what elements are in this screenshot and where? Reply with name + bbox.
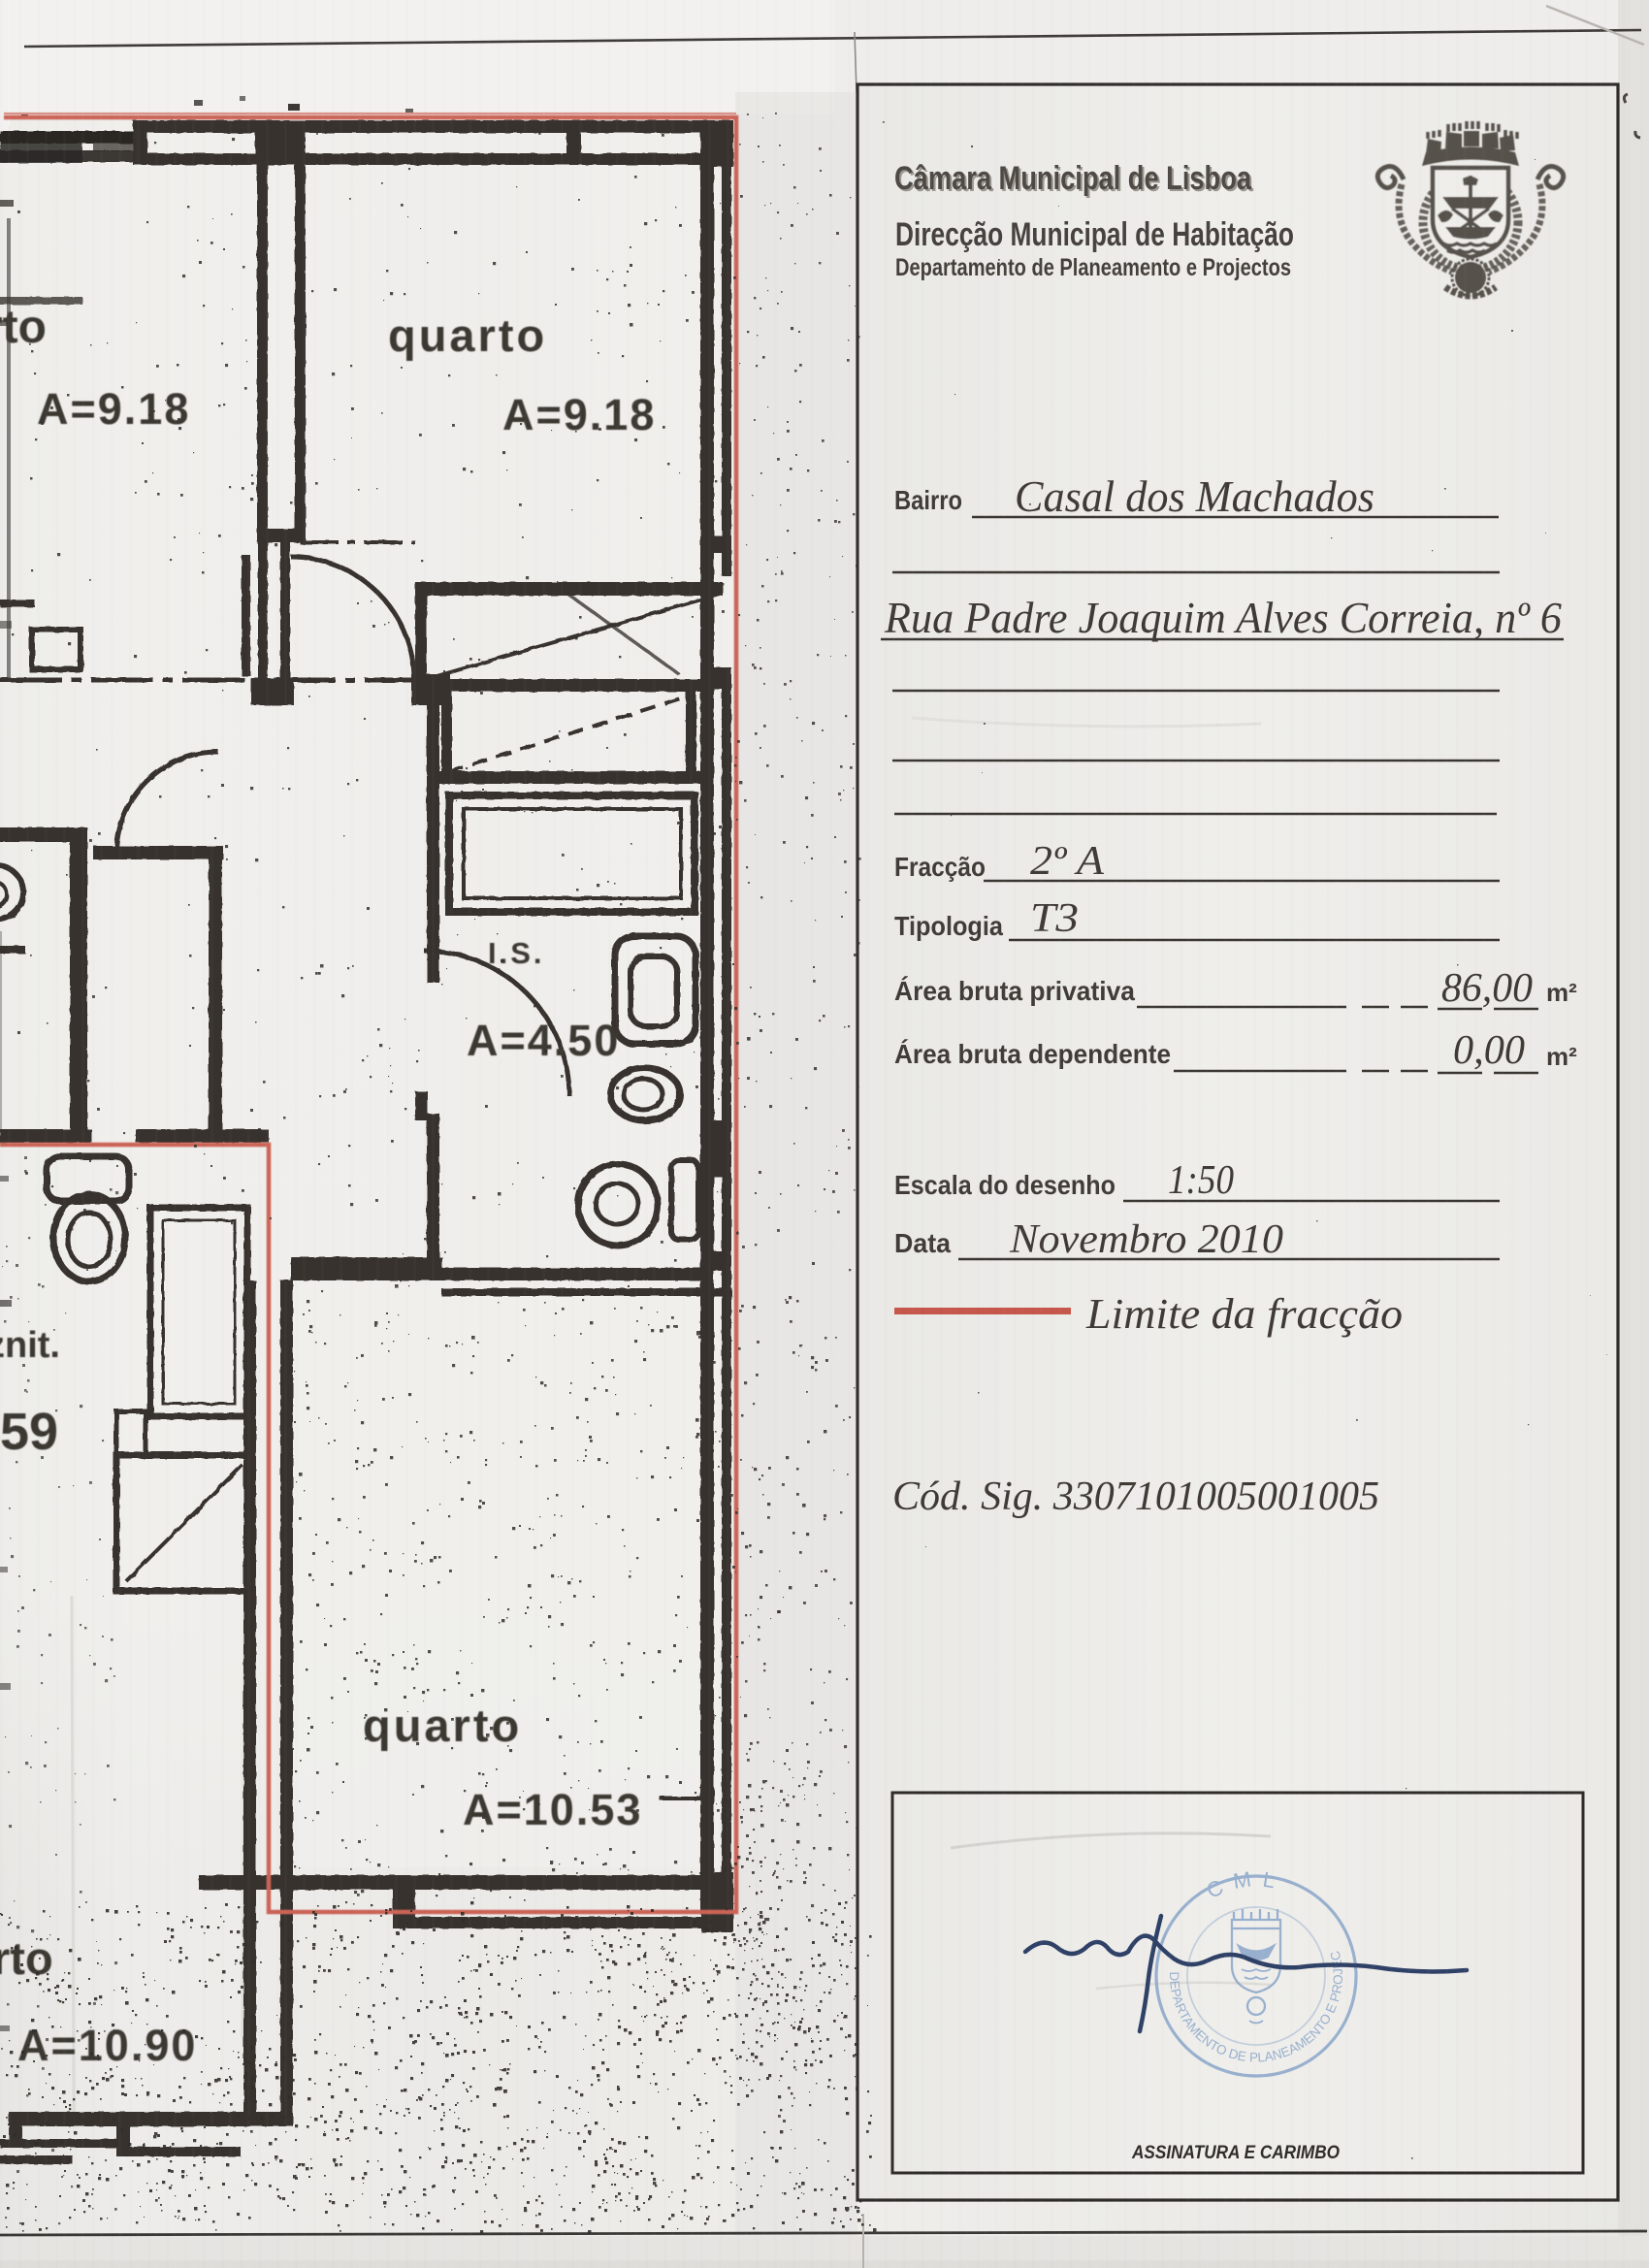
svg-text:Escala do desenho: Escala do desenho — [894, 1170, 1115, 1200]
svg-text:Tipologia: Tipologia — [894, 911, 1003, 941]
svg-text:Fracção: Fracção — [894, 852, 986, 882]
svg-text:I.S.: I.S. — [488, 936, 545, 970]
svg-text:1:50: 1:50 — [1168, 1158, 1234, 1203]
svg-text:ASSINATURA E CARIMBO: ASSINATURA E CARIMBO — [1131, 2142, 1340, 2163]
svg-text:Área bruta dependente: Área bruta dependente — [894, 1039, 1171, 1069]
svg-text:T3: T3 — [1030, 896, 1079, 941]
svg-text:quarto: quarto — [363, 1700, 522, 1751]
svg-text:0,00: 0,00 — [1453, 1028, 1525, 1073]
svg-text:86,00: 86,00 — [1441, 966, 1533, 1011]
svg-text:A=9.18: A=9.18 — [37, 384, 190, 434]
svg-text:A=4.50: A=4.50 — [467, 1016, 620, 1065]
svg-text:rto: rto — [0, 1932, 53, 1984]
svg-text:Área bruta privativa: Área bruta privativa — [894, 976, 1135, 1006]
svg-text:Bairro: Bairro — [894, 485, 962, 515]
svg-text:znit.: znit. — [0, 1325, 60, 1366]
svg-text:Casal dos Machados: Casal dos Machados — [1015, 471, 1374, 521]
svg-text:A=10.90: A=10.90 — [17, 2021, 197, 2070]
svg-text:A=10.53: A=10.53 — [463, 1785, 642, 1834]
svg-text:Data: Data — [894, 1228, 951, 1258]
svg-text:Novembro 2010: Novembro 2010 — [1009, 1217, 1283, 1262]
svg-text:Rua Padre Joaquim Alves Correi: Rua Padre Joaquim Alves Correia, nº 6 — [884, 593, 1562, 642]
svg-text:m²: m² — [1546, 1042, 1577, 1071]
svg-text:Cód. Sig. 3307101005001005: Cód. Sig. 3307101005001005 — [892, 1474, 1379, 1519]
svg-text:Câmara Municipal de Lisboa: Câmara Municipal de Lisboa — [894, 160, 1252, 197]
svg-text:rto: rto — [0, 302, 47, 353]
svg-text:m²: m² — [1546, 978, 1577, 1007]
svg-text:59: 59 — [0, 1403, 58, 1461]
svg-text:A=9.18: A=9.18 — [502, 390, 656, 439]
svg-text:Departamento de Planeamento e: Departamento de Planeamento e Projectos — [895, 254, 1291, 281]
svg-text:2º A: 2º A — [1030, 839, 1104, 884]
svg-text:quarto: quarto — [388, 309, 547, 361]
svg-text:Direcção Municipal de Habitaçã: Direcção Municipal de Habitação — [895, 216, 1294, 253]
svg-text:Limite da fracção: Limite da fracção — [1085, 1290, 1403, 1338]
